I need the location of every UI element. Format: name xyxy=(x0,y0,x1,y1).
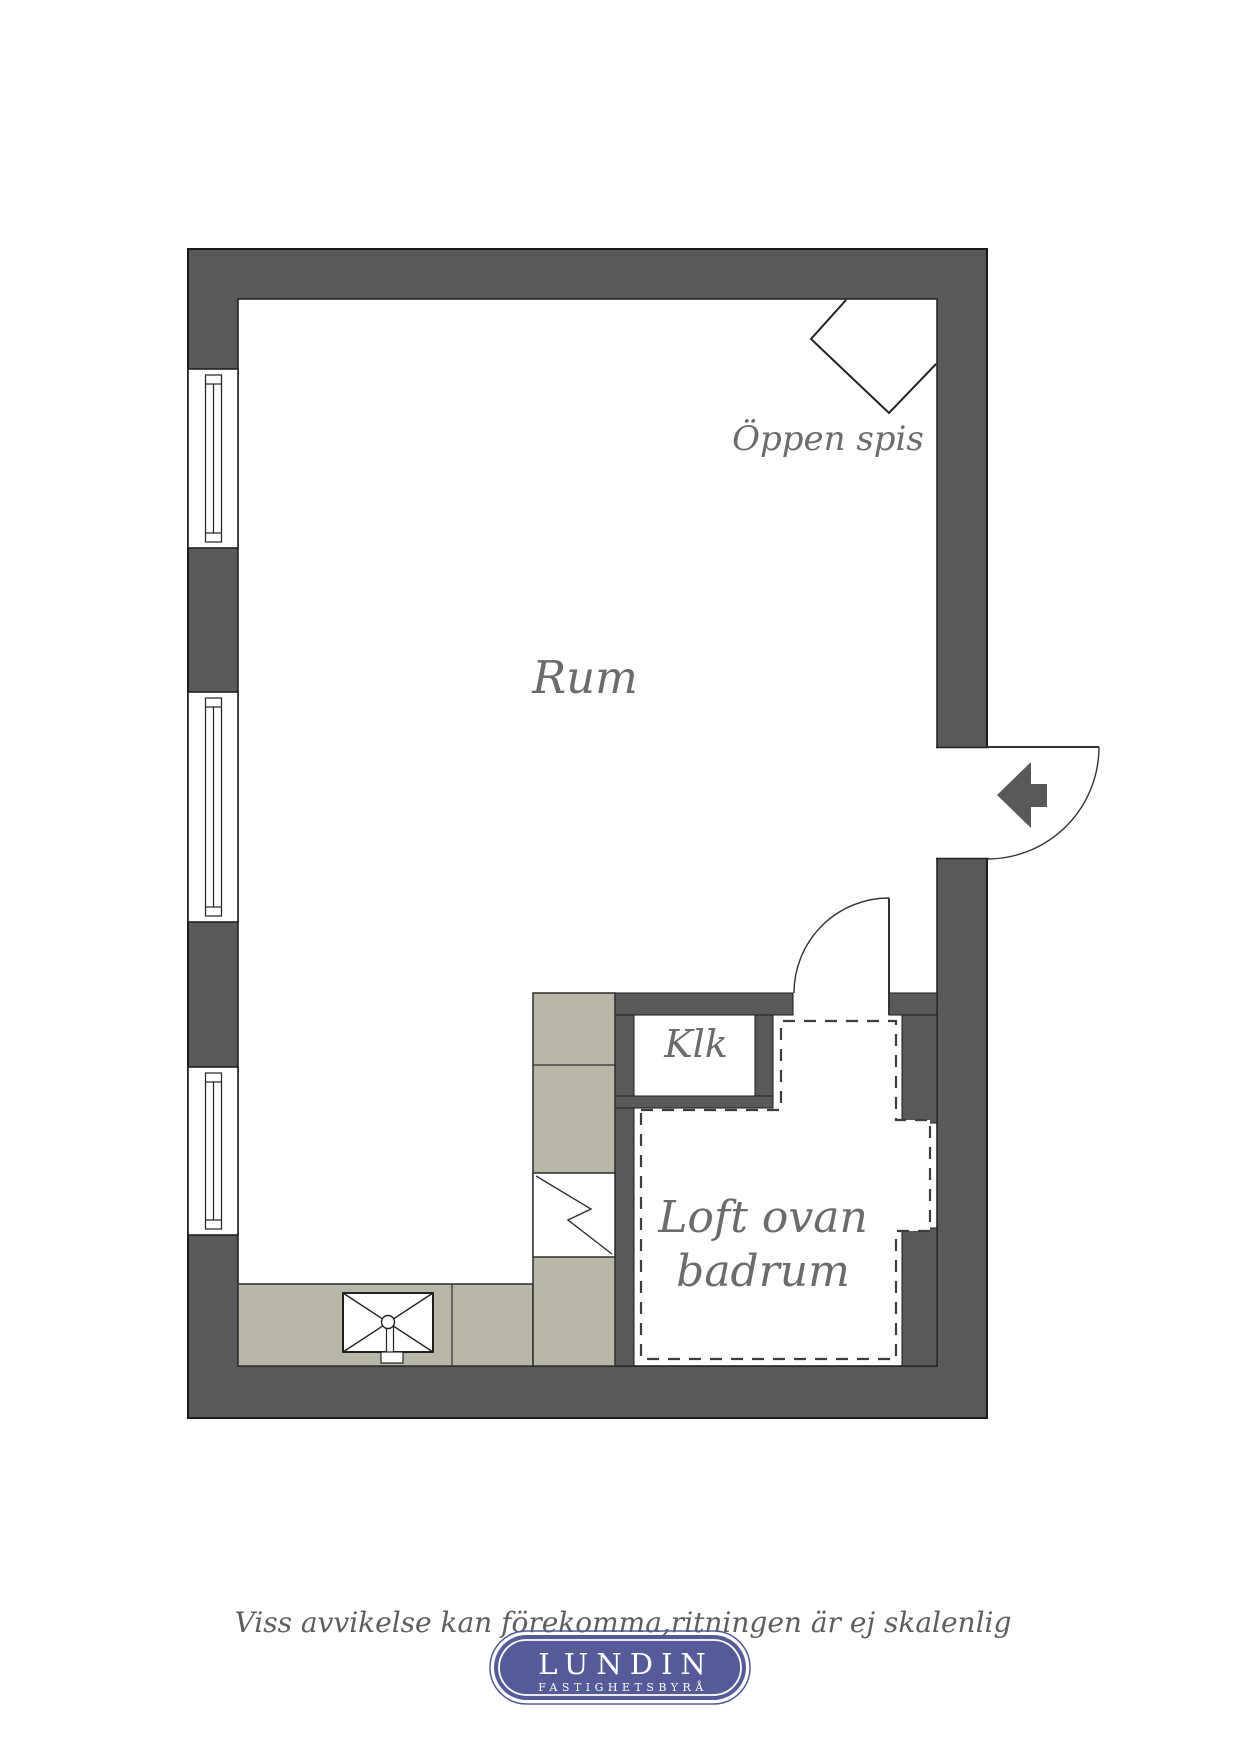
disclaimer-text: Viss avvikelse kan förekomma,ritningen ä… xyxy=(235,1606,1012,1639)
logo-name: LUNDIN xyxy=(538,1647,714,1681)
label-oppen-spis: Öppen spis xyxy=(732,418,924,459)
room-label-loft-line1: Loft ovan xyxy=(657,1192,868,1243)
room-label-rum: Rum xyxy=(531,651,638,704)
window-2 xyxy=(188,692,238,922)
stair-section xyxy=(533,1173,615,1257)
logo-subtitle: FASTIGHETSBYRÅ xyxy=(538,1680,708,1694)
room-label-klk: Klk xyxy=(663,1022,728,1066)
floorplan-canvas: Rum Öppen spis Klk Loft ovan badrum Viss… xyxy=(0,0,1240,1754)
window-1 xyxy=(188,369,238,548)
room-label-loft-line2: badrum xyxy=(676,1246,850,1297)
shower-symbol xyxy=(343,1293,433,1363)
lundin-logo: LUNDIN FASTIGHETSBYRÅ xyxy=(490,1631,750,1704)
window-3 xyxy=(188,1067,238,1235)
entrance-arrow-icon xyxy=(997,762,1047,828)
entrance-door-opening xyxy=(936,748,989,858)
